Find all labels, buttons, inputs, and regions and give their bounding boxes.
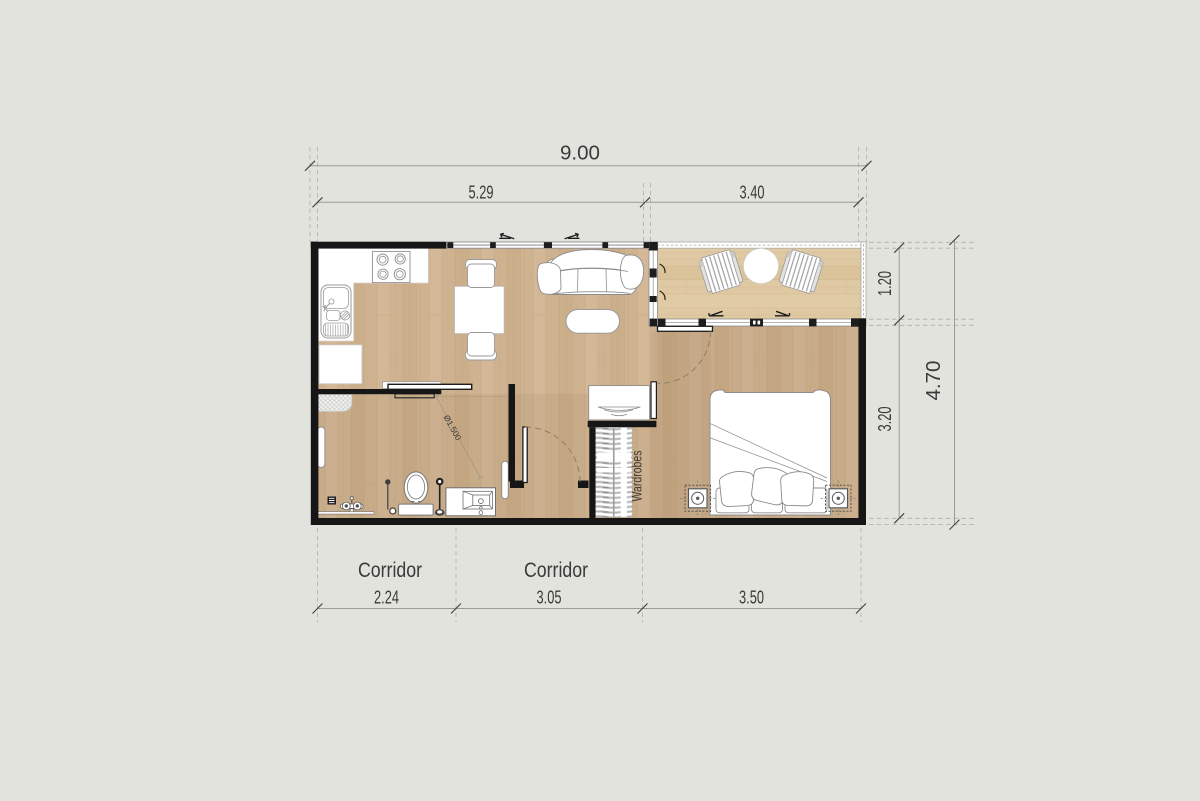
svg-text:Corridor: Corridor bbox=[358, 559, 422, 582]
svg-text:3.40: 3.40 bbox=[740, 182, 765, 202]
svg-text:5.29: 5.29 bbox=[469, 182, 494, 202]
svg-text:4.70: 4.70 bbox=[923, 361, 945, 401]
svg-text:3.50: 3.50 bbox=[739, 588, 764, 608]
svg-text:1.20: 1.20 bbox=[875, 271, 895, 296]
svg-text:9.00: 9.00 bbox=[560, 143, 600, 165]
svg-text:2.24: 2.24 bbox=[374, 588, 399, 608]
svg-text:3.05: 3.05 bbox=[537, 588, 562, 608]
svg-text:Corridor: Corridor bbox=[524, 559, 588, 582]
svg-text:Wardrobes: Wardrobes bbox=[629, 451, 645, 502]
svg-text:3.20: 3.20 bbox=[875, 407, 895, 432]
